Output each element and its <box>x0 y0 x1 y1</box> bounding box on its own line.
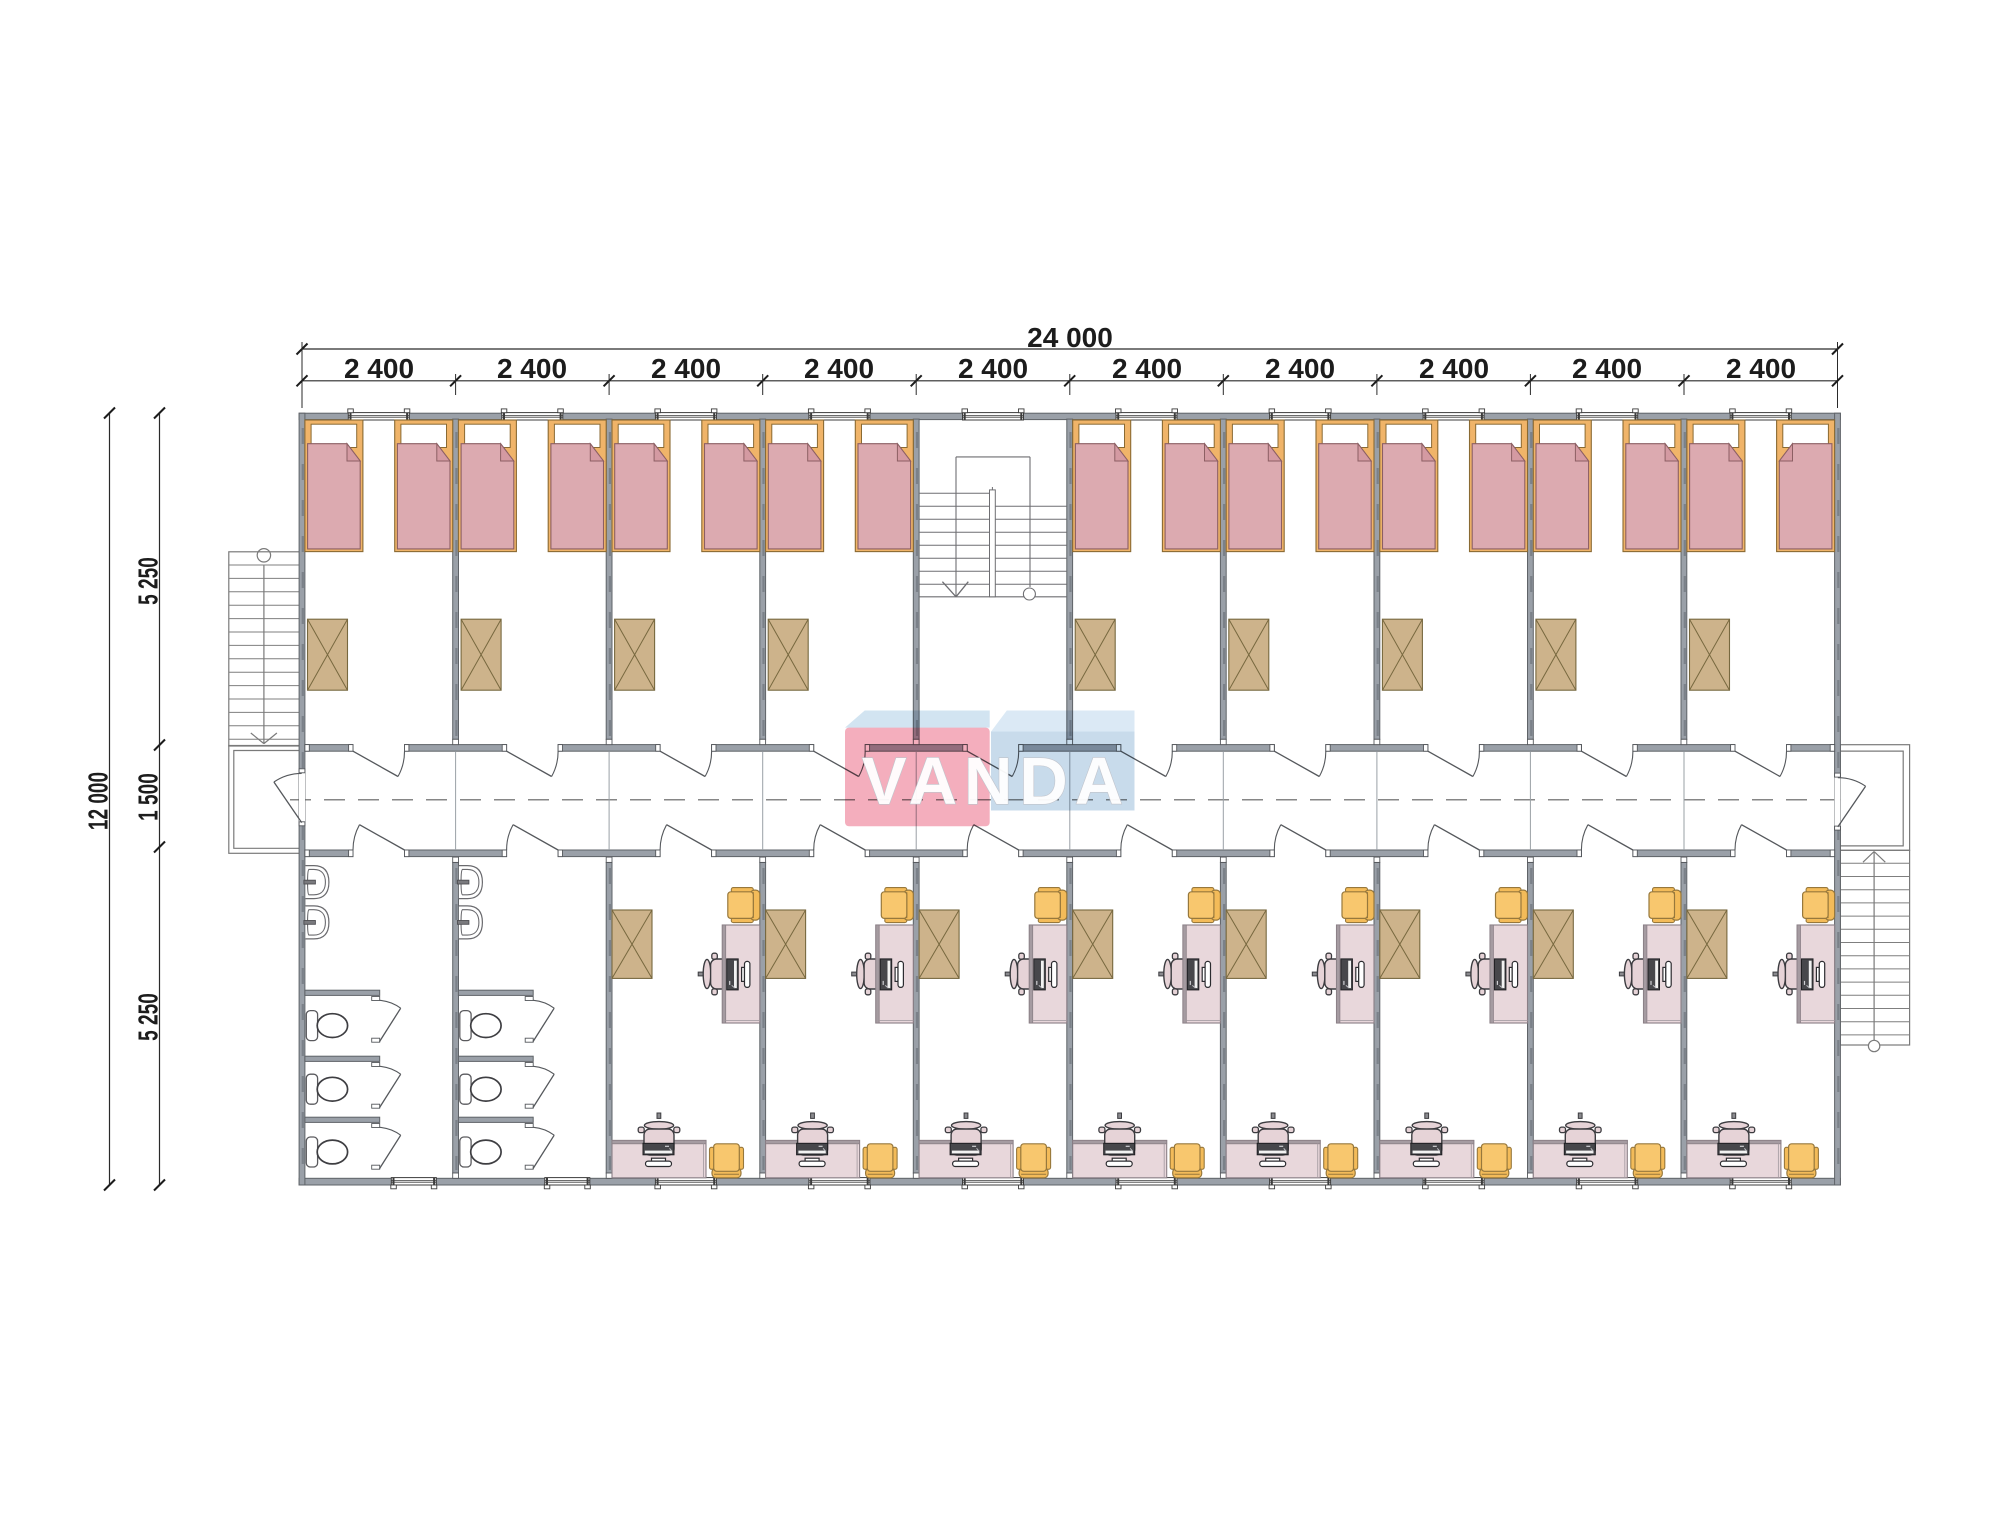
svg-text:2 400: 2 400 <box>497 353 567 384</box>
svg-text:2 400: 2 400 <box>651 353 721 384</box>
svg-text:1 500: 1 500 <box>133 773 165 821</box>
svg-text:2 400: 2 400 <box>804 353 874 384</box>
svg-text:2 400: 2 400 <box>1572 353 1642 384</box>
svg-text:2 400: 2 400 <box>344 353 414 384</box>
svg-text:24 000: 24 000 <box>1027 322 1113 353</box>
svg-text:2 400: 2 400 <box>1265 353 1335 384</box>
svg-text:12 000: 12 000 <box>83 772 115 830</box>
svg-text:2 400: 2 400 <box>958 353 1028 384</box>
svg-text:VANDA: VANDA <box>862 744 1130 819</box>
svg-text:5 250: 5 250 <box>133 993 165 1041</box>
svg-text:5 250: 5 250 <box>133 557 165 605</box>
svg-text:2 400: 2 400 <box>1112 353 1182 384</box>
svg-text:2 400: 2 400 <box>1419 353 1489 384</box>
svg-text:2 400: 2 400 <box>1726 353 1796 384</box>
